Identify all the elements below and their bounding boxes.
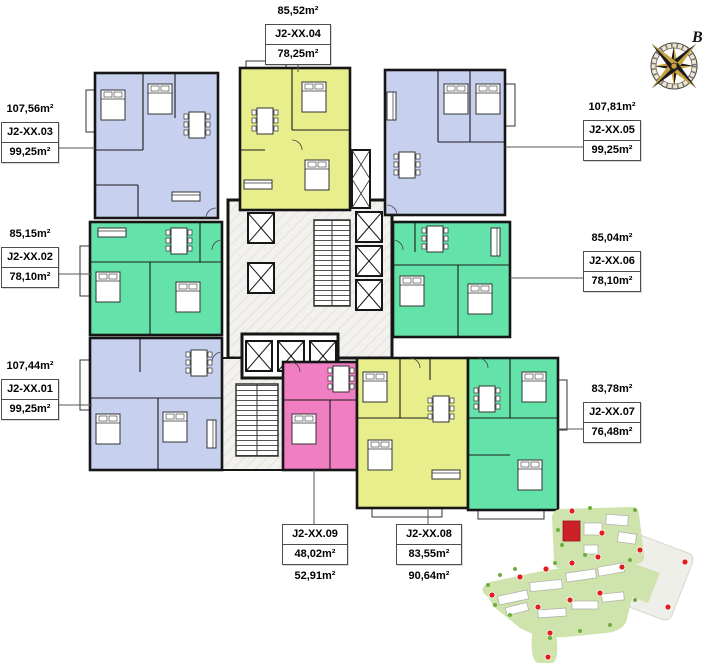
- balcony: [80, 246, 90, 296]
- unit-label-j2-xx-04[interactable]: 85,52m² J2-XX.04 78,25m²: [265, 5, 331, 65]
- unit-label-j2-xx-05[interactable]: 107,81m² J2-XX.05 99,25m²: [583, 101, 641, 161]
- unit-label-j2-xx-02[interactable]: 85,15m² J2-XX.02 78,10m²: [1, 228, 59, 288]
- unit-outer-area: 83,78m²: [583, 383, 641, 396]
- unit-label-j2-xx-08[interactable]: J2-XX.08 83,55m² 90,64m²: [396, 524, 462, 583]
- unit-label-j2-xx-07[interactable]: 83,78m² J2-XX.07 76,48m²: [583, 383, 641, 443]
- unit-box-area: 99,25m²: [2, 142, 58, 162]
- unit-box-area: 78,25m²: [266, 44, 330, 64]
- balcony: [80, 360, 90, 410]
- apartment-unit-01[interactable]: [80, 338, 222, 470]
- unit-label-box: J2-XX.05 99,25m²: [583, 120, 641, 161]
- unit-code: J2-XX.03: [2, 123, 58, 142]
- compass-rose-icon: B: [648, 29, 703, 92]
- unit-label-j2-xx-03[interactable]: 107,56m² J2-XX.03 99,25m²: [1, 103, 59, 163]
- unit-outer-area: 52,91m²: [282, 570, 348, 583]
- unit-label-j2-xx-06[interactable]: 85,04m² J2-XX.06 78,10m²: [583, 232, 641, 292]
- compass-north-label: B: [691, 29, 703, 46]
- unit-box-area: 78,10m²: [584, 271, 640, 291]
- elevator-icon: [356, 212, 382, 242]
- unit-code: J2-XX.05: [584, 121, 640, 140]
- apartment-unit-04[interactable]: [240, 61, 350, 210]
- unit-box-area: 83,55m²: [397, 544, 461, 564]
- unit-box-area: 76,48m²: [584, 422, 640, 442]
- unit-label-box: J2-XX.01 99,25m²: [1, 379, 59, 420]
- elevator-icon: [356, 280, 382, 310]
- site-plan-thumbnail: [482, 506, 692, 663]
- unit-outer-area: 107,81m²: [583, 101, 641, 114]
- unit-outer-area: 85,52m²: [265, 5, 331, 18]
- elevator-icon: [248, 213, 274, 243]
- elevator-icon: [246, 341, 272, 371]
- unit-code: J2-XX.01: [2, 380, 58, 399]
- unit-outer-area: 85,04m²: [583, 232, 641, 245]
- unit-label-box: J2-XX.07 76,48m²: [583, 402, 641, 443]
- unit-code: J2-XX.06: [584, 252, 640, 271]
- elevator-icon: [356, 246, 382, 276]
- unit-code: J2-XX.04: [266, 25, 330, 44]
- unit-label-box: J2-XX.02 78,10m²: [1, 247, 59, 288]
- unit-outer-area: 90,64m²: [396, 570, 462, 583]
- unit-code: J2-XX.08: [397, 525, 461, 544]
- unit-outer-area: 107,44m²: [1, 360, 59, 373]
- unit-box-area: 99,25m²: [2, 399, 58, 419]
- unit-label-box: J2-XX.04 78,25m²: [265, 24, 331, 65]
- apartment-unit-07[interactable]: [468, 358, 567, 519]
- apartment-unit-09[interactable]: [283, 362, 357, 470]
- apartment-unit-06[interactable]: [393, 222, 510, 337]
- current-building-marker: [563, 521, 580, 541]
- unit-box-area: 48,02m²: [283, 544, 347, 564]
- apartment-unit-08[interactable]: [357, 358, 468, 517]
- unit-label-j2-xx-09[interactable]: J2-XX.09 48,02m² 52,91m²: [282, 524, 348, 583]
- unit-box-area: 78,10m²: [2, 267, 58, 287]
- unit-label-j2-xx-01[interactable]: 107,44m² J2-XX.01 99,25m²: [1, 360, 59, 420]
- balcony: [558, 380, 567, 430]
- unit-box-area: 99,25m²: [584, 140, 640, 160]
- unit-label-box: J2-XX.06 78,10m²: [583, 251, 641, 292]
- apartment-unit-05[interactable]: [385, 70, 515, 215]
- unit-code: J2-XX.09: [283, 525, 347, 544]
- unit-code: J2-XX.02: [2, 248, 58, 267]
- unit-label-box: J2-XX.08 83,55m²: [396, 524, 462, 565]
- balcony: [478, 510, 544, 519]
- elevator-icon: [248, 263, 274, 293]
- unit-label-box: J2-XX.03 99,25m²: [1, 122, 59, 163]
- unit-outer-area: 107,56m²: [1, 103, 59, 116]
- balcony: [505, 84, 515, 126]
- apartment-unit-03[interactable]: [86, 73, 218, 218]
- unit-outer-area: 85,15m²: [1, 228, 59, 241]
- apartment-unit-02[interactable]: [80, 222, 222, 335]
- unit-label-box: J2-XX.09 48,02m²: [282, 524, 348, 565]
- floor-plan-page: B: [0, 0, 720, 670]
- balcony: [372, 508, 442, 517]
- unit-code: J2-XX.07: [584, 403, 640, 422]
